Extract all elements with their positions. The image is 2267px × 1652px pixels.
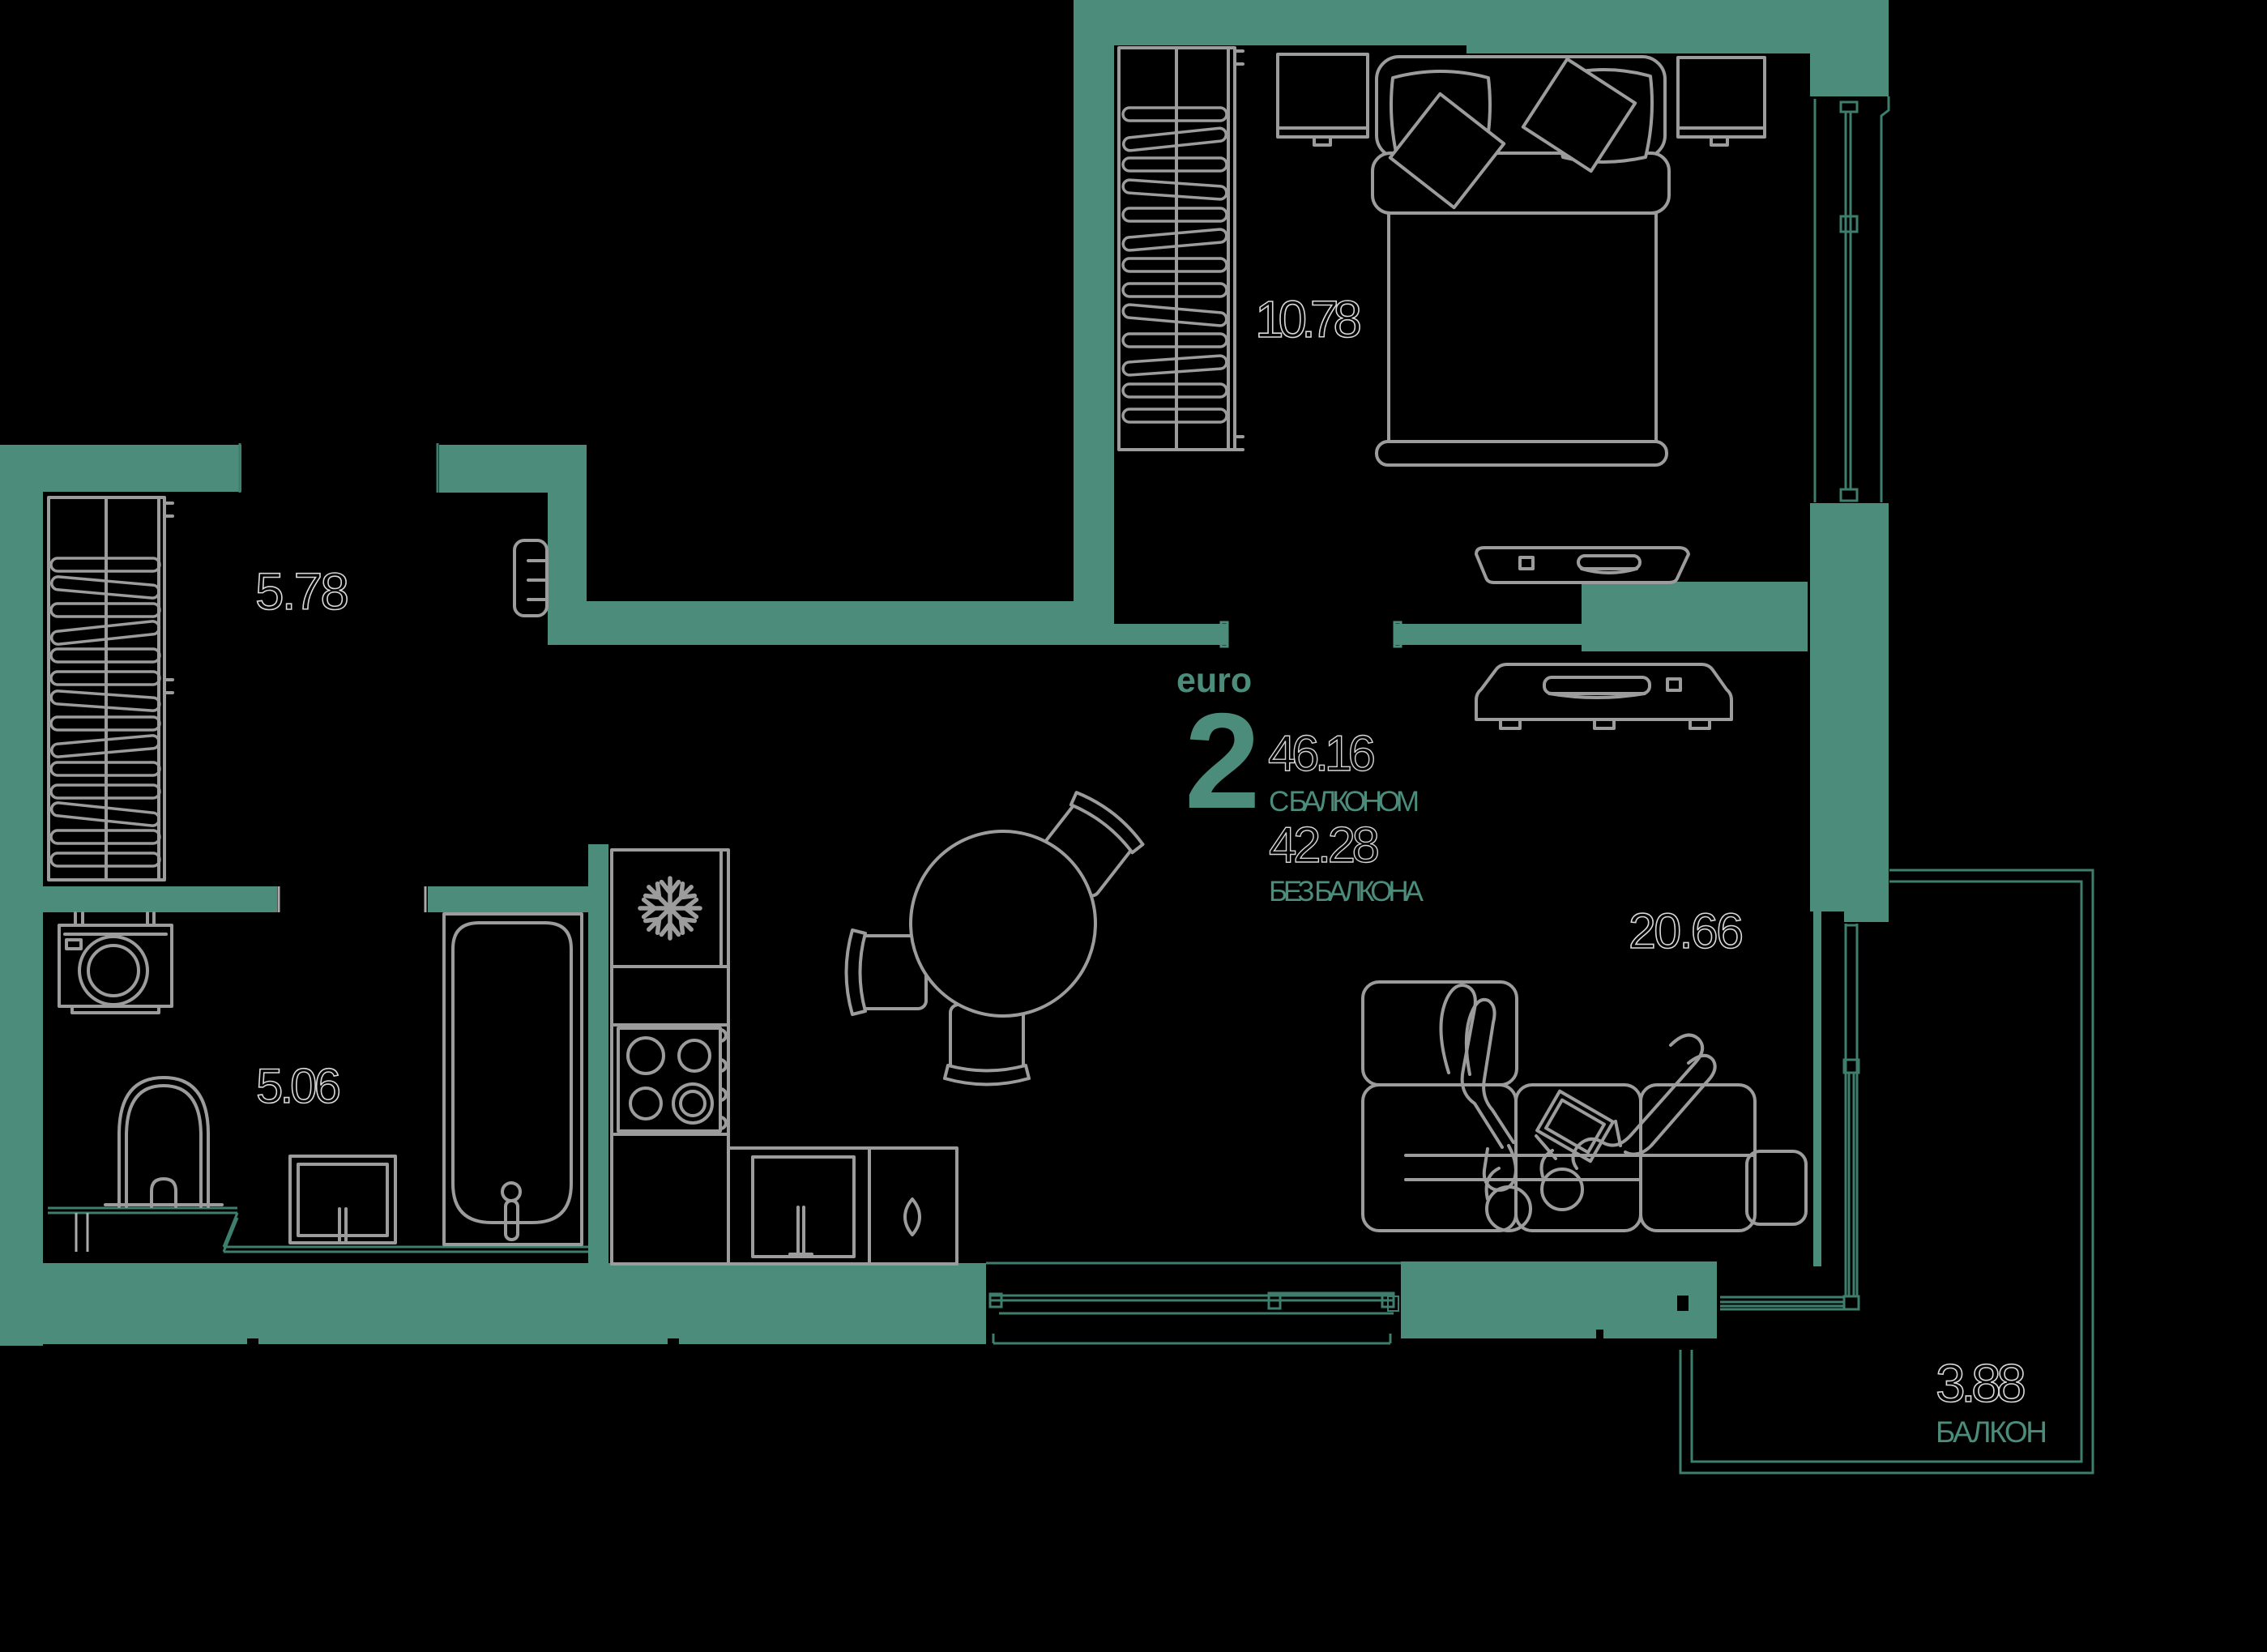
- svg-text:20.66: 20.66: [1629, 903, 1744, 958]
- svg-text:2: 2: [1185, 685, 1260, 837]
- svg-text:3.88: 3.88: [1936, 1353, 2026, 1413]
- svg-text:5.06: 5.06: [256, 1059, 341, 1113]
- svg-text:БАЛКОН: БАЛКОН: [1936, 1415, 2047, 1449]
- svg-text:42.28: 42.28: [1269, 817, 1380, 873]
- svg-text:10.78: 10.78: [1255, 290, 1362, 348]
- svg-text:46.16: 46.16: [1268, 726, 1376, 782]
- svg-text:БЕЗ БАЛКОНА: БЕЗ БАЛКОНА: [1269, 876, 1424, 907]
- svg-text:С БАЛКОНОМ: С БАЛКОНОМ: [1269, 786, 1420, 817]
- svg-text:5.78: 5.78: [255, 562, 349, 621]
